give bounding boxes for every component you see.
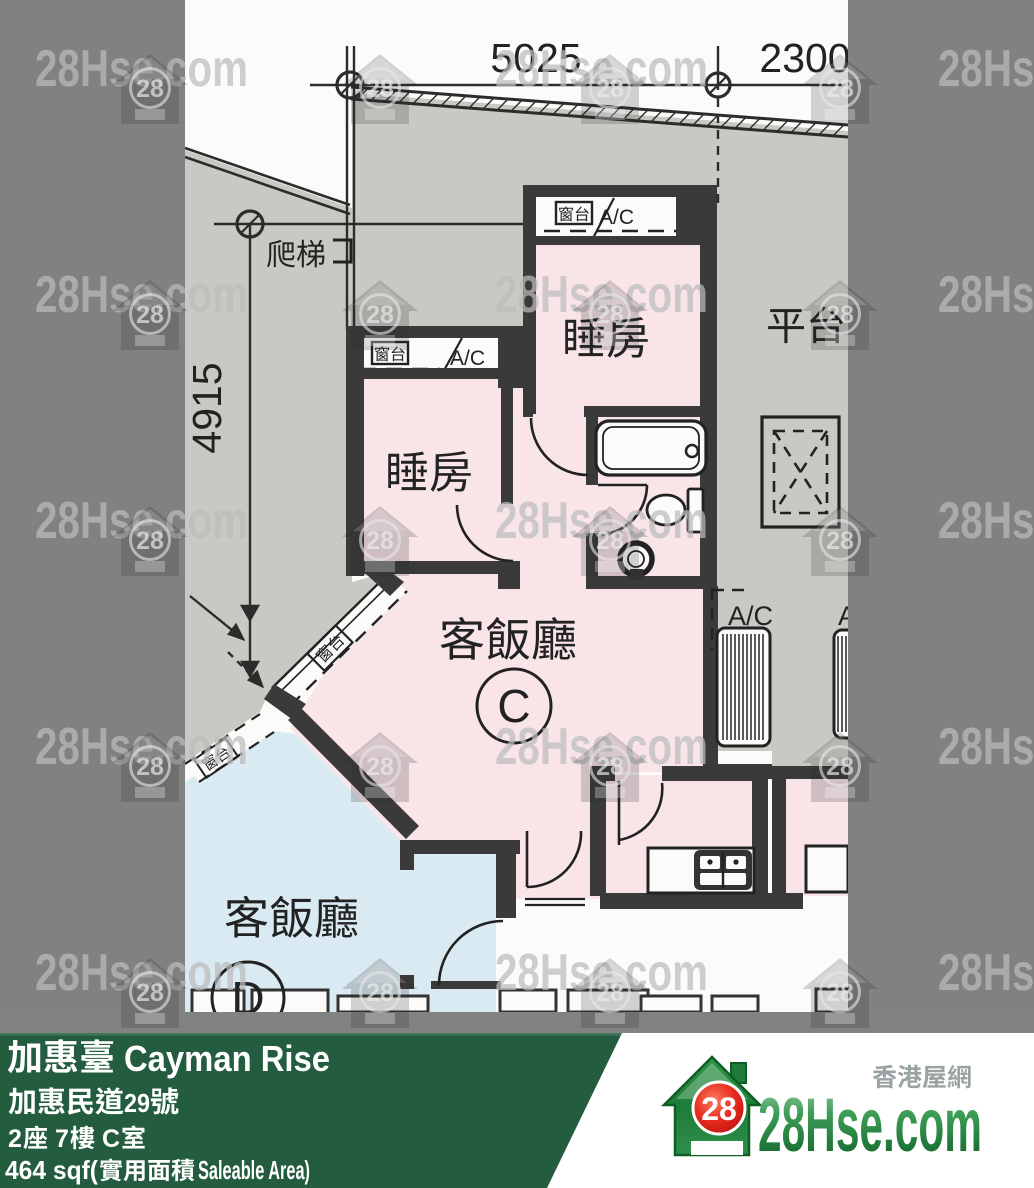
svg-text:464 sqf(: 464 sqf( bbox=[5, 1155, 98, 1185]
svg-text:4915: 4915 bbox=[184, 362, 230, 453]
svg-text:A/C: A/C bbox=[728, 601, 773, 631]
svg-text:29: 29 bbox=[124, 1088, 150, 1118]
svg-text:28: 28 bbox=[701, 1091, 737, 1127]
svg-text:Saleable Area): Saleable Area) bbox=[198, 1155, 310, 1185]
svg-text:2: 2 bbox=[8, 1125, 22, 1153]
svg-text:Cayman Rise: Cayman Rise bbox=[124, 1038, 330, 1079]
svg-text:28Hse.com: 28Hse.com bbox=[758, 1083, 982, 1168]
svg-text:7: 7 bbox=[55, 1125, 69, 1153]
svg-text:C: C bbox=[102, 1125, 120, 1153]
